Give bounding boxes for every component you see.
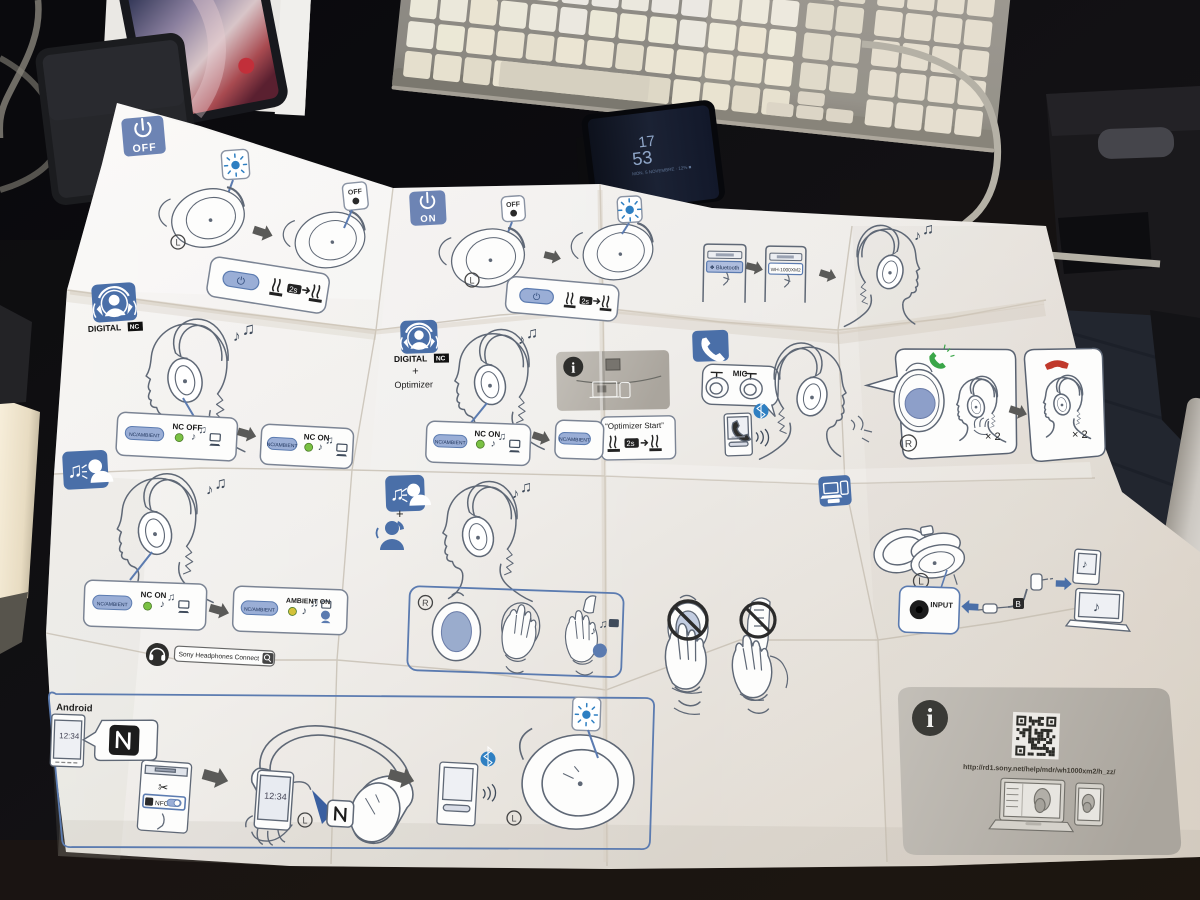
svg-text:♪: ♪ (301, 605, 307, 617)
svg-text:♪: ♪ (318, 442, 324, 453)
svg-text:L: L (511, 814, 516, 824)
svg-text:OFF: OFF (506, 201, 521, 209)
svg-text:♪: ♪ (512, 485, 519, 501)
svg-text:53: 53 (631, 147, 653, 169)
svg-text:DIGITAL: DIGITAL (88, 322, 122, 334)
svg-text:B: B (1016, 600, 1021, 609)
svg-text:⏻: ⏻ (236, 276, 246, 288)
svg-text:♪: ♪ (206, 483, 213, 499)
svg-text:✂: ✂ (158, 780, 169, 795)
svg-text:2s: 2s (288, 285, 298, 295)
svg-text:L: L (918, 577, 924, 588)
svg-text:Android: Android (56, 702, 93, 714)
svg-text:ON: ON (420, 213, 437, 225)
svg-text:NC: NC (436, 355, 446, 362)
svg-text:♫: ♫ (242, 319, 255, 339)
svg-text:2s: 2s (581, 296, 590, 306)
svg-text:⏻: ⏻ (532, 292, 540, 303)
svg-text:♪: ♪ (233, 328, 241, 345)
svg-text:♫: ♫ (520, 479, 532, 496)
svg-text:♫: ♫ (66, 459, 83, 483)
svg-text:♪: ♪ (914, 227, 921, 243)
svg-text:× 2: × 2 (1072, 429, 1088, 441)
svg-text:Optimizer: Optimizer (394, 379, 433, 390)
svg-text:2s: 2s (626, 439, 634, 448)
svg-text:+: + (412, 366, 419, 378)
svg-text:♪: ♪ (1082, 559, 1088, 571)
svg-text:× 2: × 2 (985, 431, 1001, 443)
svg-text:NC/AMBIENT: NC/AMBIENT (244, 607, 275, 614)
svg-text:“Optimizer Start”: “Optimizer Start” (605, 421, 664, 431)
svg-text:NC/AMBIENT: NC/AMBIENT (435, 439, 466, 446)
svg-text:NC ON: NC ON (474, 429, 500, 439)
svg-text:12:34: 12:34 (264, 791, 287, 803)
svg-text:♫: ♫ (198, 424, 207, 436)
svg-text:L: L (469, 276, 474, 286)
svg-text:♪: ♪ (191, 432, 197, 443)
svg-text:R: R (422, 598, 429, 608)
svg-text:NC/AMBIENT: NC/AMBIENT (559, 437, 590, 444)
svg-text:❖ Bluetooth: ❖ Bluetooth (710, 265, 740, 272)
svg-text:OFF: OFF (132, 141, 157, 155)
svg-text:♫: ♫ (599, 617, 608, 631)
svg-text:i: i (571, 361, 575, 377)
svg-text:♫: ♫ (310, 596, 319, 610)
svg-text:INPUT: INPUT (930, 600, 953, 610)
svg-text:♪: ♪ (518, 331, 525, 347)
svg-text:♪: ♪ (590, 625, 596, 637)
svg-text:♪: ♪ (160, 599, 165, 610)
svg-text:♫: ♫ (167, 591, 176, 603)
svg-text:DIGITAL: DIGITAL (394, 353, 428, 364)
svg-text:♫: ♫ (922, 221, 934, 238)
svg-text:♫: ♫ (498, 431, 507, 443)
svg-text:NFC: NFC (155, 800, 169, 808)
svg-text:L: L (302, 816, 307, 826)
svg-text:♪: ♪ (491, 438, 496, 449)
svg-text:i: i (926, 703, 934, 733)
svg-text:NC/AMBIENT: NC/AMBIENT (97, 601, 128, 608)
svg-text:L: L (175, 238, 180, 248)
svg-text:12:34: 12:34 (59, 731, 80, 741)
svg-text:♫: ♫ (526, 325, 538, 342)
svg-text:NC: NC (130, 324, 140, 331)
svg-text:WH-1000XM2: WH-1000XM2 (771, 267, 802, 274)
svg-text:+: + (396, 506, 404, 521)
svg-text:♪: ♪ (1093, 598, 1101, 614)
svg-text:♫: ♫ (325, 434, 334, 446)
svg-text:R: R (905, 439, 913, 450)
svg-text:♫: ♫ (389, 483, 405, 506)
svg-text:♫: ♫ (214, 473, 227, 492)
